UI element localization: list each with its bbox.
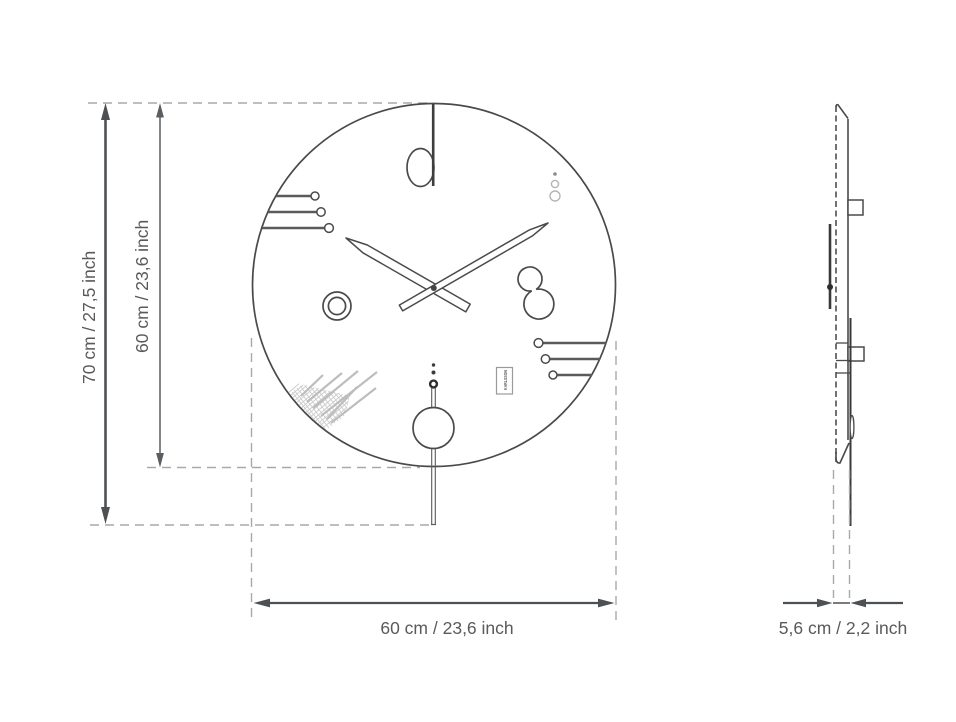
svg-text:5,6 cm / 2,2 inch: 5,6 cm / 2,2 inch xyxy=(779,618,907,638)
svg-text:KARLSSON: KARLSSON xyxy=(503,370,508,390)
svg-text:70 cm / 27,5 inch: 70 cm / 27,5 inch xyxy=(79,251,99,384)
svg-text:60 cm / 23,6 inch: 60 cm / 23,6 inch xyxy=(132,220,152,353)
svg-text:60 cm / 23,6 inch: 60 cm / 23,6 inch xyxy=(380,618,513,638)
